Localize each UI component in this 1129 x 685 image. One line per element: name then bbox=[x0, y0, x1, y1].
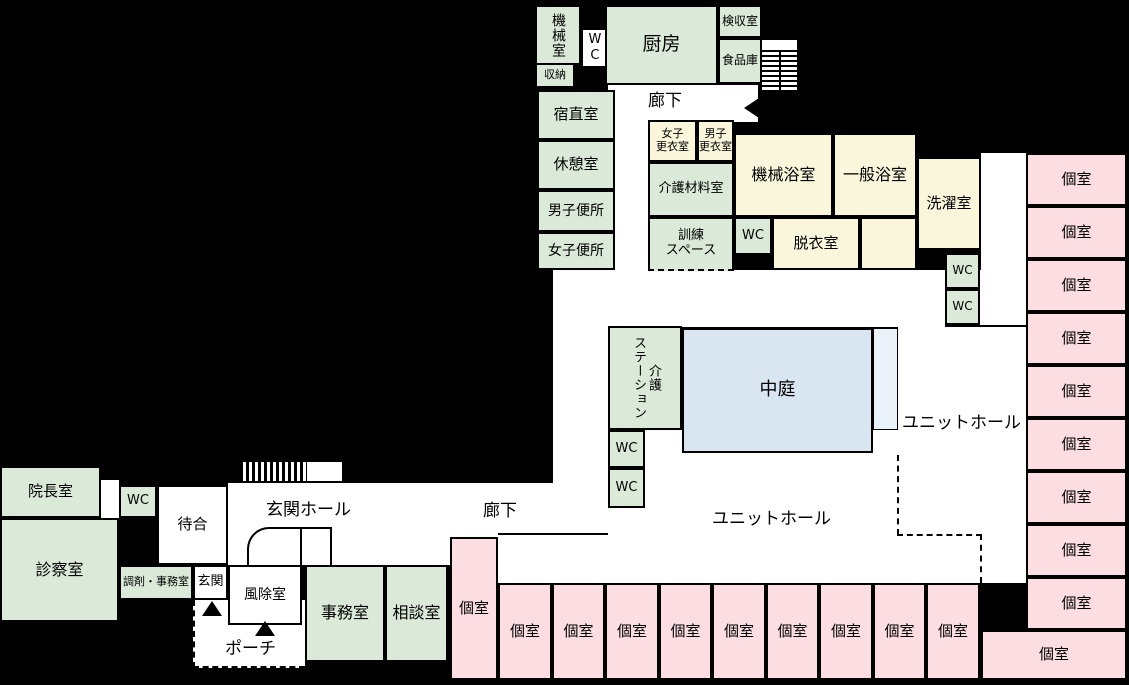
room-個室: 個室 bbox=[498, 583, 552, 680]
corridor-notch-icon bbox=[744, 96, 762, 120]
entrance-arrow-1-icon bbox=[202, 601, 222, 616]
room-個室: 個室 bbox=[1026, 471, 1127, 524]
unit-boundary-v2 bbox=[980, 534, 982, 583]
room-風除室: 風除室 bbox=[228, 565, 302, 625]
room-label: 個室 bbox=[670, 623, 700, 640]
room-収納: 収納 bbox=[535, 63, 575, 88]
room-label: 収納 bbox=[544, 69, 566, 82]
room-中庭: 中庭 bbox=[682, 328, 873, 453]
room-label: WC bbox=[616, 442, 638, 457]
room-WC: WC bbox=[581, 28, 607, 68]
room-個室: 個室 bbox=[712, 583, 766, 680]
room-個室: 個室 bbox=[552, 583, 605, 680]
floor-area bbox=[608, 508, 645, 583]
room-label: 個室 bbox=[1061, 171, 1091, 188]
floor-area bbox=[615, 120, 648, 272]
floor-area bbox=[101, 480, 119, 518]
room-label: 女子便所 bbox=[548, 243, 604, 259]
room-label: WC bbox=[127, 494, 149, 509]
room-label: 洗濯室 bbox=[926, 195, 971, 212]
room-個室: 個室 bbox=[766, 583, 819, 680]
room-機械室: 機械室 bbox=[535, 5, 581, 65]
room-label: WC bbox=[742, 229, 764, 244]
room-label: 相談室 bbox=[392, 604, 440, 622]
room-相談室: 相談室 bbox=[385, 565, 448, 662]
room-個室: 個室 bbox=[1026, 524, 1127, 577]
room-個室: 個室 bbox=[605, 583, 659, 680]
room-女子更衣室: 女子 更衣室 bbox=[648, 120, 697, 162]
room-厨房: 厨房 bbox=[605, 5, 718, 85]
room-label: 個室 bbox=[724, 623, 754, 640]
room-label: 介護 ステーション bbox=[630, 336, 660, 420]
room-label: 風除室 bbox=[244, 587, 286, 603]
room-院長室: 院長室 bbox=[0, 466, 101, 518]
room-label: 食品庫 bbox=[722, 54, 758, 68]
room-個室: 個室 bbox=[819, 583, 873, 680]
floor-area bbox=[898, 327, 1026, 583]
stairs-rail bbox=[779, 50, 781, 90]
room-個室: 個室 bbox=[1026, 206, 1127, 259]
unit-boundary-v1 bbox=[897, 455, 899, 535]
room-label: 個室 bbox=[617, 623, 647, 640]
room-label: WC bbox=[952, 264, 972, 278]
room-男子便所: 男子便所 bbox=[537, 190, 615, 232]
vestibule-wall-v bbox=[330, 527, 332, 565]
room-脱衣室: 脱衣室 bbox=[772, 217, 860, 270]
floor-plan: 機械室WC収納厨房検収室食品庫宿直室休憩室男子便所女子便所女子 更衣室男子 更衣… bbox=[0, 0, 1129, 685]
room-個室: 個室 bbox=[926, 583, 980, 680]
area-label: 廊下 bbox=[648, 86, 682, 111]
room-調剤・事務室: 調剤・事務室 bbox=[119, 565, 193, 600]
room-unlabeled bbox=[860, 217, 917, 270]
room-label: WC bbox=[587, 32, 602, 64]
floor-area bbox=[553, 270, 981, 327]
room-検収室: 検収室 bbox=[718, 5, 762, 38]
room-label: 個室 bbox=[884, 623, 914, 640]
room-label: 個室 bbox=[1061, 330, 1091, 347]
room-個室: 個室 bbox=[981, 630, 1127, 680]
room-個室: 個室 bbox=[1026, 153, 1127, 206]
room-食品庫: 食品庫 bbox=[718, 38, 762, 84]
room-個室: 個室 bbox=[1026, 577, 1127, 630]
room-WC: WC bbox=[945, 289, 980, 325]
room-男子更衣室: 男子 更衣室 bbox=[697, 120, 734, 162]
room-label: 女子 更衣室 bbox=[656, 128, 689, 153]
room-WC: WC bbox=[608, 430, 645, 468]
room-一般浴室: 一般浴室 bbox=[833, 133, 917, 217]
entrance-arrow-2-icon bbox=[255, 621, 275, 636]
room-label: 訓練 スペース bbox=[666, 229, 716, 259]
room-玄関: 玄関 bbox=[193, 565, 228, 600]
room-label: 個室 bbox=[831, 623, 861, 640]
room-label: 検収室 bbox=[722, 15, 758, 29]
vestibule-curve-wall bbox=[247, 527, 302, 565]
room-個室: 個室 bbox=[873, 583, 926, 680]
room-WC: WC bbox=[608, 468, 645, 508]
room-label: 個室 bbox=[938, 623, 968, 640]
room-WC: WC bbox=[119, 485, 157, 518]
corridor-wall bbox=[498, 533, 608, 535]
room-label: 個室 bbox=[563, 623, 593, 640]
room-label: 院長室 bbox=[28, 483, 73, 500]
room-label: 事務室 bbox=[321, 604, 369, 622]
room-label: 介護材料室 bbox=[658, 182, 723, 197]
area-label: ユニットホール bbox=[902, 408, 1021, 433]
floor-area bbox=[608, 85, 758, 122]
room-介護材料室: 介護材料室 bbox=[648, 162, 734, 217]
room-label: 個室 bbox=[1061, 224, 1091, 241]
room-label: 個室 bbox=[1061, 489, 1091, 506]
room-label: 個室 bbox=[1061, 277, 1091, 294]
area-label: 廊下 bbox=[483, 496, 517, 521]
room-label: 玄関 bbox=[197, 575, 223, 590]
room-女子便所: 女子便所 bbox=[537, 232, 615, 270]
room-label: 個室 bbox=[1061, 542, 1091, 559]
area-label: ポーチ bbox=[225, 634, 276, 659]
room-label: 待合 bbox=[177, 516, 207, 533]
room-宿直室: 宿直室 bbox=[537, 90, 615, 140]
room-label: 機械室 bbox=[550, 13, 566, 58]
floor-area bbox=[645, 430, 682, 455]
room-label: 脱衣室 bbox=[793, 235, 838, 252]
room-label: 厨房 bbox=[642, 34, 680, 56]
room-個室: 個室 bbox=[659, 583, 712, 680]
room-label: 個室 bbox=[1061, 595, 1091, 612]
room-機械浴室: 機械浴室 bbox=[734, 133, 833, 217]
room-label: 中庭 bbox=[760, 380, 796, 401]
area-label: ユニットホール bbox=[712, 504, 831, 529]
room-label: 機械浴室 bbox=[751, 166, 815, 184]
floor-area bbox=[873, 430, 898, 453]
courtyard-veranda bbox=[873, 328, 898, 430]
room-label: 診察室 bbox=[35, 561, 83, 579]
room-label: 調剤・事務室 bbox=[123, 576, 189, 589]
floor-area bbox=[981, 153, 1026, 327]
room-個室: 個室 bbox=[1026, 365, 1127, 418]
room-label: 一般浴室 bbox=[843, 166, 907, 184]
room-個室: 個室 bbox=[1026, 312, 1127, 365]
area-label: 玄関ホール bbox=[266, 495, 351, 520]
room-label: 個室 bbox=[1039, 646, 1069, 663]
room-個室: 個室 bbox=[1026, 259, 1127, 312]
unit-boundary-h bbox=[897, 534, 982, 536]
room-洗濯室: 洗濯室 bbox=[917, 157, 981, 250]
room-label: 個室 bbox=[459, 600, 489, 617]
room-label: 個室 bbox=[1061, 383, 1091, 400]
room-個室: 個室 bbox=[450, 537, 498, 680]
room-事務室: 事務室 bbox=[305, 565, 385, 662]
room-label: 男子便所 bbox=[548, 203, 604, 219]
hall-wall bbox=[945, 325, 1026, 327]
room-訓練スペース: 訓練 スペース bbox=[648, 217, 734, 271]
room-label: 宿直室 bbox=[553, 106, 598, 123]
room-label: 休憩室 bbox=[553, 156, 598, 173]
room-WC: WC bbox=[945, 253, 980, 289]
room-個室: 個室 bbox=[1026, 418, 1127, 471]
room-休憩室: 休憩室 bbox=[537, 140, 615, 190]
room-待合: 待合 bbox=[157, 485, 228, 565]
room-label: 個室 bbox=[1061, 436, 1091, 453]
hall-opening bbox=[307, 462, 342, 481]
room-診察室: 診察室 bbox=[0, 518, 119, 622]
vestibule-wall-h bbox=[302, 527, 332, 529]
room-介護ステーション: 介護 ステーション bbox=[608, 326, 682, 430]
room-label: 個室 bbox=[777, 623, 807, 640]
room-label: WC bbox=[952, 300, 972, 314]
room-label: 男子 更衣室 bbox=[699, 128, 732, 153]
room-label: WC bbox=[616, 481, 638, 496]
room-label: 個室 bbox=[510, 623, 540, 640]
room-WC: WC bbox=[734, 217, 772, 255]
entrance-hatch-icon bbox=[240, 462, 307, 481]
